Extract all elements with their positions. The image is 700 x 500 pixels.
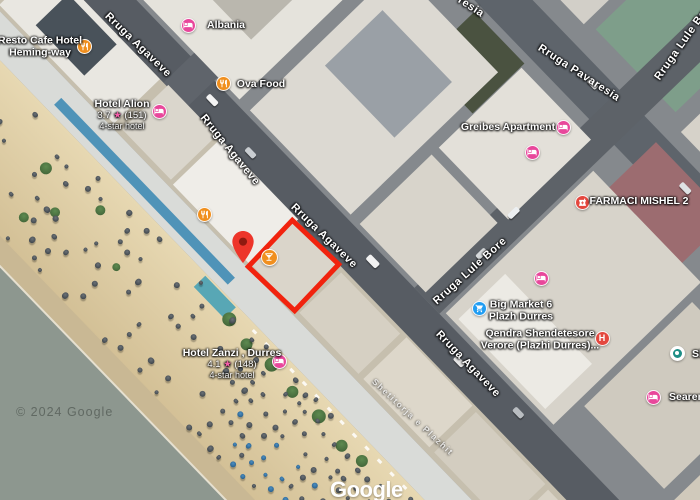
hotel-alion-label[interactable]: Hotel Alion3.7 ★ (151)4-star hotel [94, 99, 149, 131]
ova-food-label[interactable]: Ova Food [237, 79, 285, 91]
dropped-pin-icon[interactable] [232, 231, 254, 263]
greibes-apartment-label[interactable]: Greibes Apartment [461, 122, 555, 134]
qendra-shendetesore-label[interactable]: Qendra ShendetesoreVerore (Plazhi Durres… [481, 328, 599, 352]
bar-icon[interactable] [261, 249, 278, 266]
restaurant-icon[interactable] [197, 207, 212, 222]
lodging-icon[interactable] [556, 120, 571, 135]
farmaci-mishel-2-label[interactable]: FARMACI MISHEL 2 [590, 196, 689, 208]
lodging-icon[interactable] [534, 271, 549, 286]
lodging-icon[interactable] [181, 18, 196, 33]
searenn-label[interactable]: Searenn [669, 392, 700, 404]
pharmacy-icon[interactable] [575, 195, 590, 210]
poi-teal-stop-label[interactable]: Sh [692, 349, 700, 361]
lodging-icon[interactable] [646, 390, 661, 405]
poi-dot-icon[interactable] [670, 346, 685, 361]
lodging-icon[interactable] [152, 104, 167, 119]
satellite-terrain [0, 0, 700, 500]
hotel-zanzi-label[interactable]: Hotel Zanzi , Durres4.1 ★ (148)4-star ho… [183, 348, 282, 380]
albania-label[interactable]: Albania [207, 20, 245, 32]
copyright-watermark: © 2024 Google [16, 405, 113, 419]
restaurant-icon[interactable] [216, 76, 231, 91]
big-market-6-label[interactable]: Big Market 6Plazh Durres [489, 299, 553, 323]
lodging-icon[interactable] [525, 145, 540, 160]
google-logo[interactable]: Google [330, 477, 403, 500]
supermarket-icon[interactable] [472, 301, 487, 316]
resto-cafe-hotel-label[interactable]: Resto Cafe HotelHeming-way [0, 35, 82, 59]
satellite-map-viewport[interactable]: Rruga AgaveveRruga AgaveveRruga AgaveveR… [0, 0, 700, 500]
